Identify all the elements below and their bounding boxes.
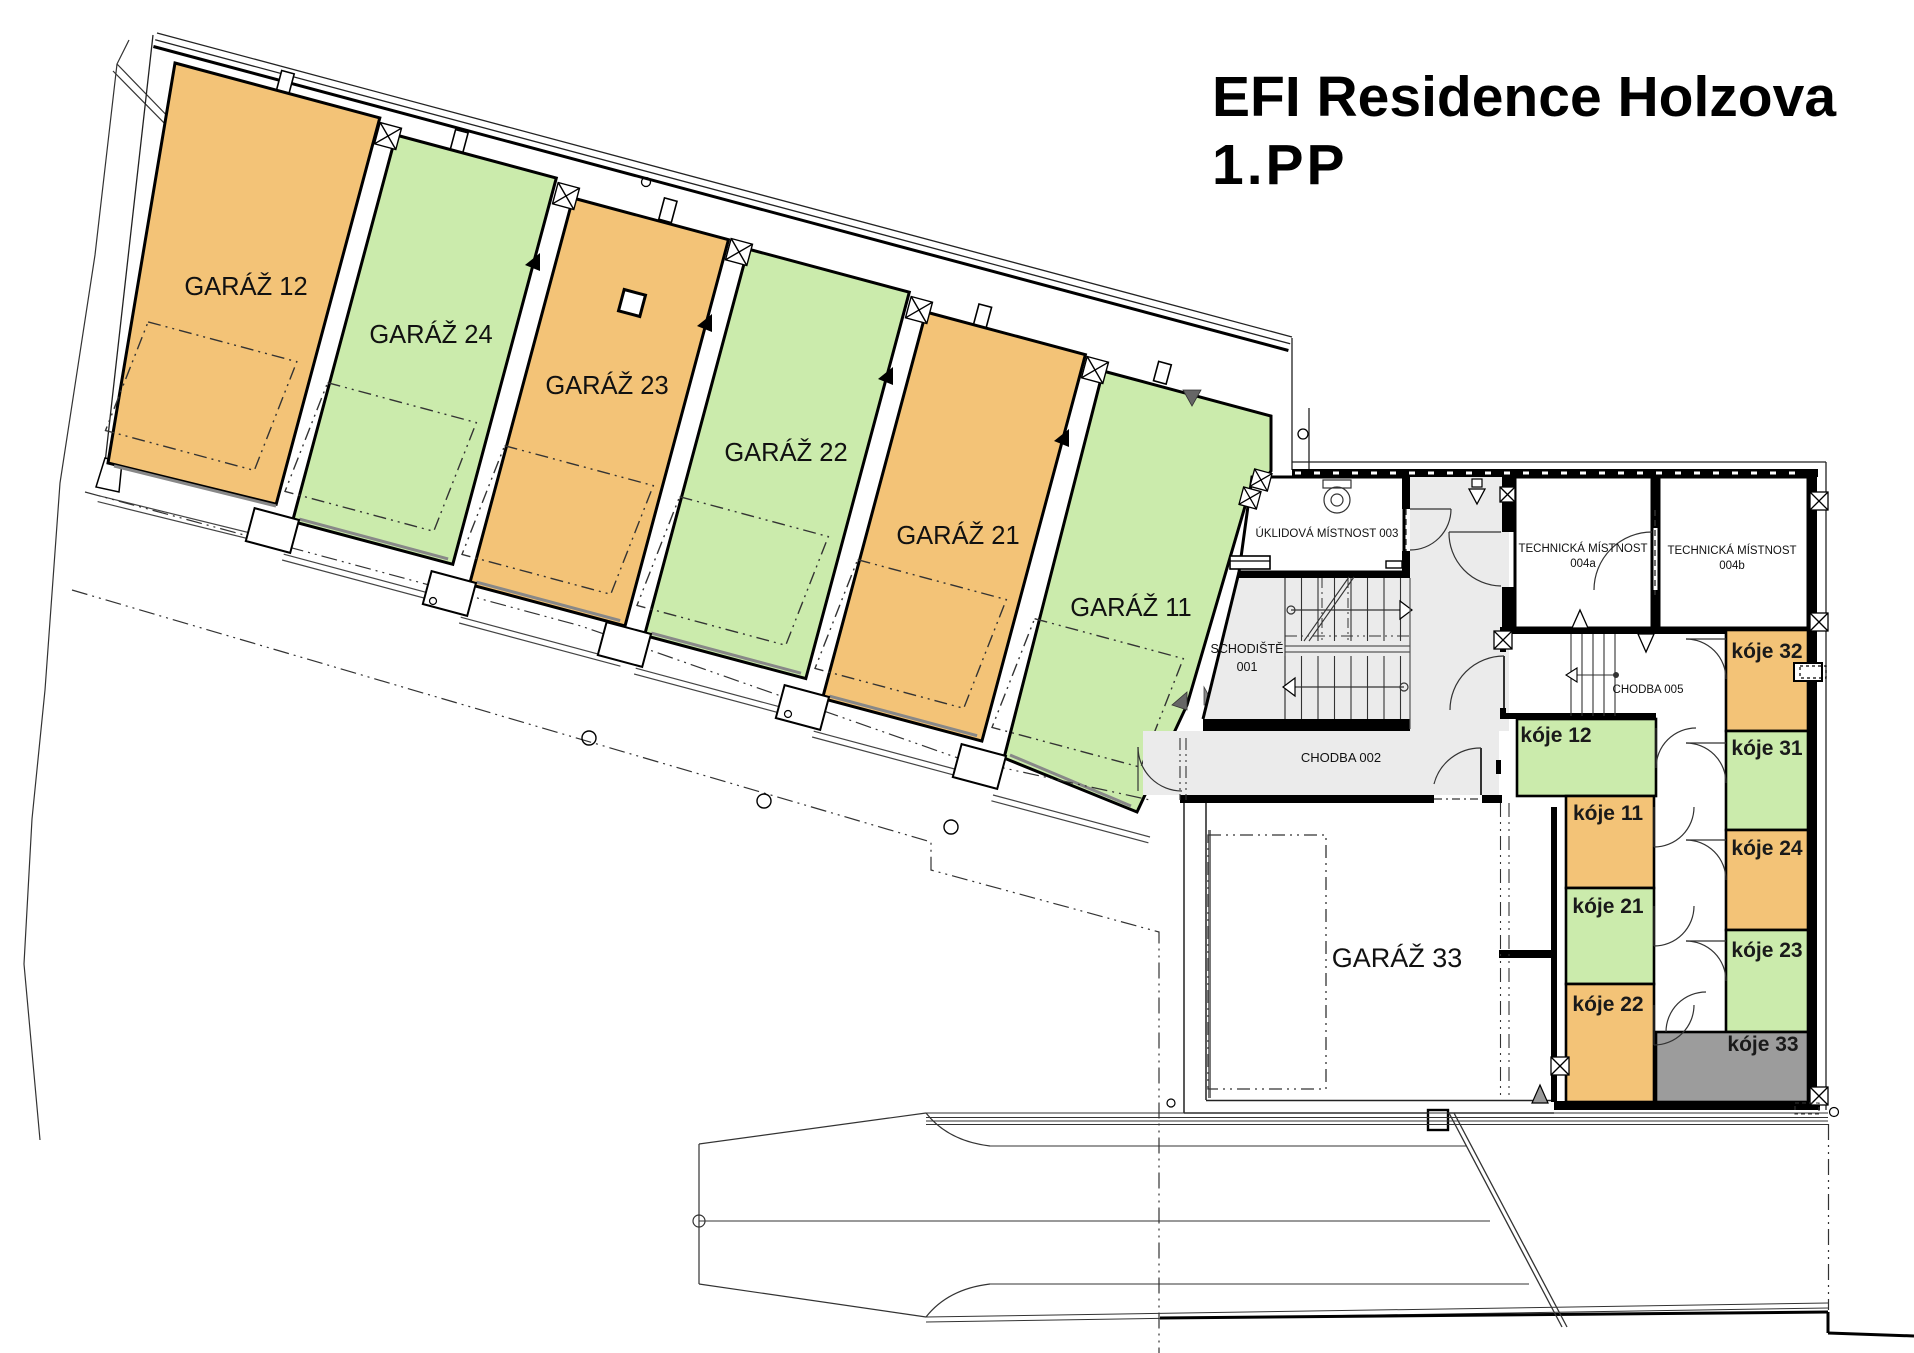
- svg-text:kóje 22: kóje 22: [1572, 993, 1643, 1016]
- svg-text:TECHNICKÁ MÍSTNOST: TECHNICKÁ MÍSTNOST: [1518, 542, 1647, 555]
- svg-text:kóje 33: kóje 33: [1727, 1033, 1798, 1056]
- svg-text:ÚKLIDOVÁ MÍSTNOST 003: ÚKLIDOVÁ MÍSTNOST 003: [1256, 527, 1399, 540]
- svg-text:EFI Residence Holzova: EFI Residence Holzova: [1212, 65, 1837, 129]
- svg-text:004b: 004b: [1719, 560, 1745, 572]
- svg-text:kóje 11: kóje 11: [1573, 802, 1643, 825]
- svg-text:GARÁŽ 21: GARÁŽ 21: [896, 521, 1019, 550]
- svg-text:GARÁŽ 24: GARÁŽ 24: [369, 320, 492, 349]
- svg-text:kóje 23: kóje 23: [1731, 939, 1802, 962]
- svg-text:SCHODIŠTĚ: SCHODIŠTĚ: [1211, 641, 1284, 656]
- svg-text:GARÁŽ 11: GARÁŽ 11: [1070, 593, 1191, 622]
- svg-text:CHODBA 005: CHODBA 005: [1613, 684, 1684, 696]
- svg-text:kóje 24: kóje 24: [1731, 837, 1803, 860]
- svg-text:GARÁŽ 22: GARÁŽ 22: [724, 438, 847, 467]
- svg-text:GARÁŽ 33: GARÁŽ 33: [1332, 942, 1463, 973]
- svg-text:GARÁŽ 23: GARÁŽ 23: [545, 371, 668, 400]
- svg-text:kóje 31: kóje 31: [1731, 737, 1803, 760]
- svg-text:1.PP: 1.PP: [1212, 133, 1348, 197]
- svg-text:004a: 004a: [1570, 558, 1596, 570]
- svg-text:kóje 32: kóje 32: [1731, 640, 1802, 663]
- svg-text:CHODBA 002: CHODBA 002: [1301, 750, 1381, 765]
- svg-text:GARÁŽ 12: GARÁŽ 12: [184, 272, 307, 301]
- svg-text:kóje 21: kóje 21: [1572, 895, 1644, 918]
- svg-text:kóje 12: kóje 12: [1520, 724, 1591, 747]
- svg-text:001: 001: [1237, 660, 1258, 674]
- svg-text:TECHNICKÁ MÍSTNOST: TECHNICKÁ MÍSTNOST: [1667, 544, 1796, 557]
